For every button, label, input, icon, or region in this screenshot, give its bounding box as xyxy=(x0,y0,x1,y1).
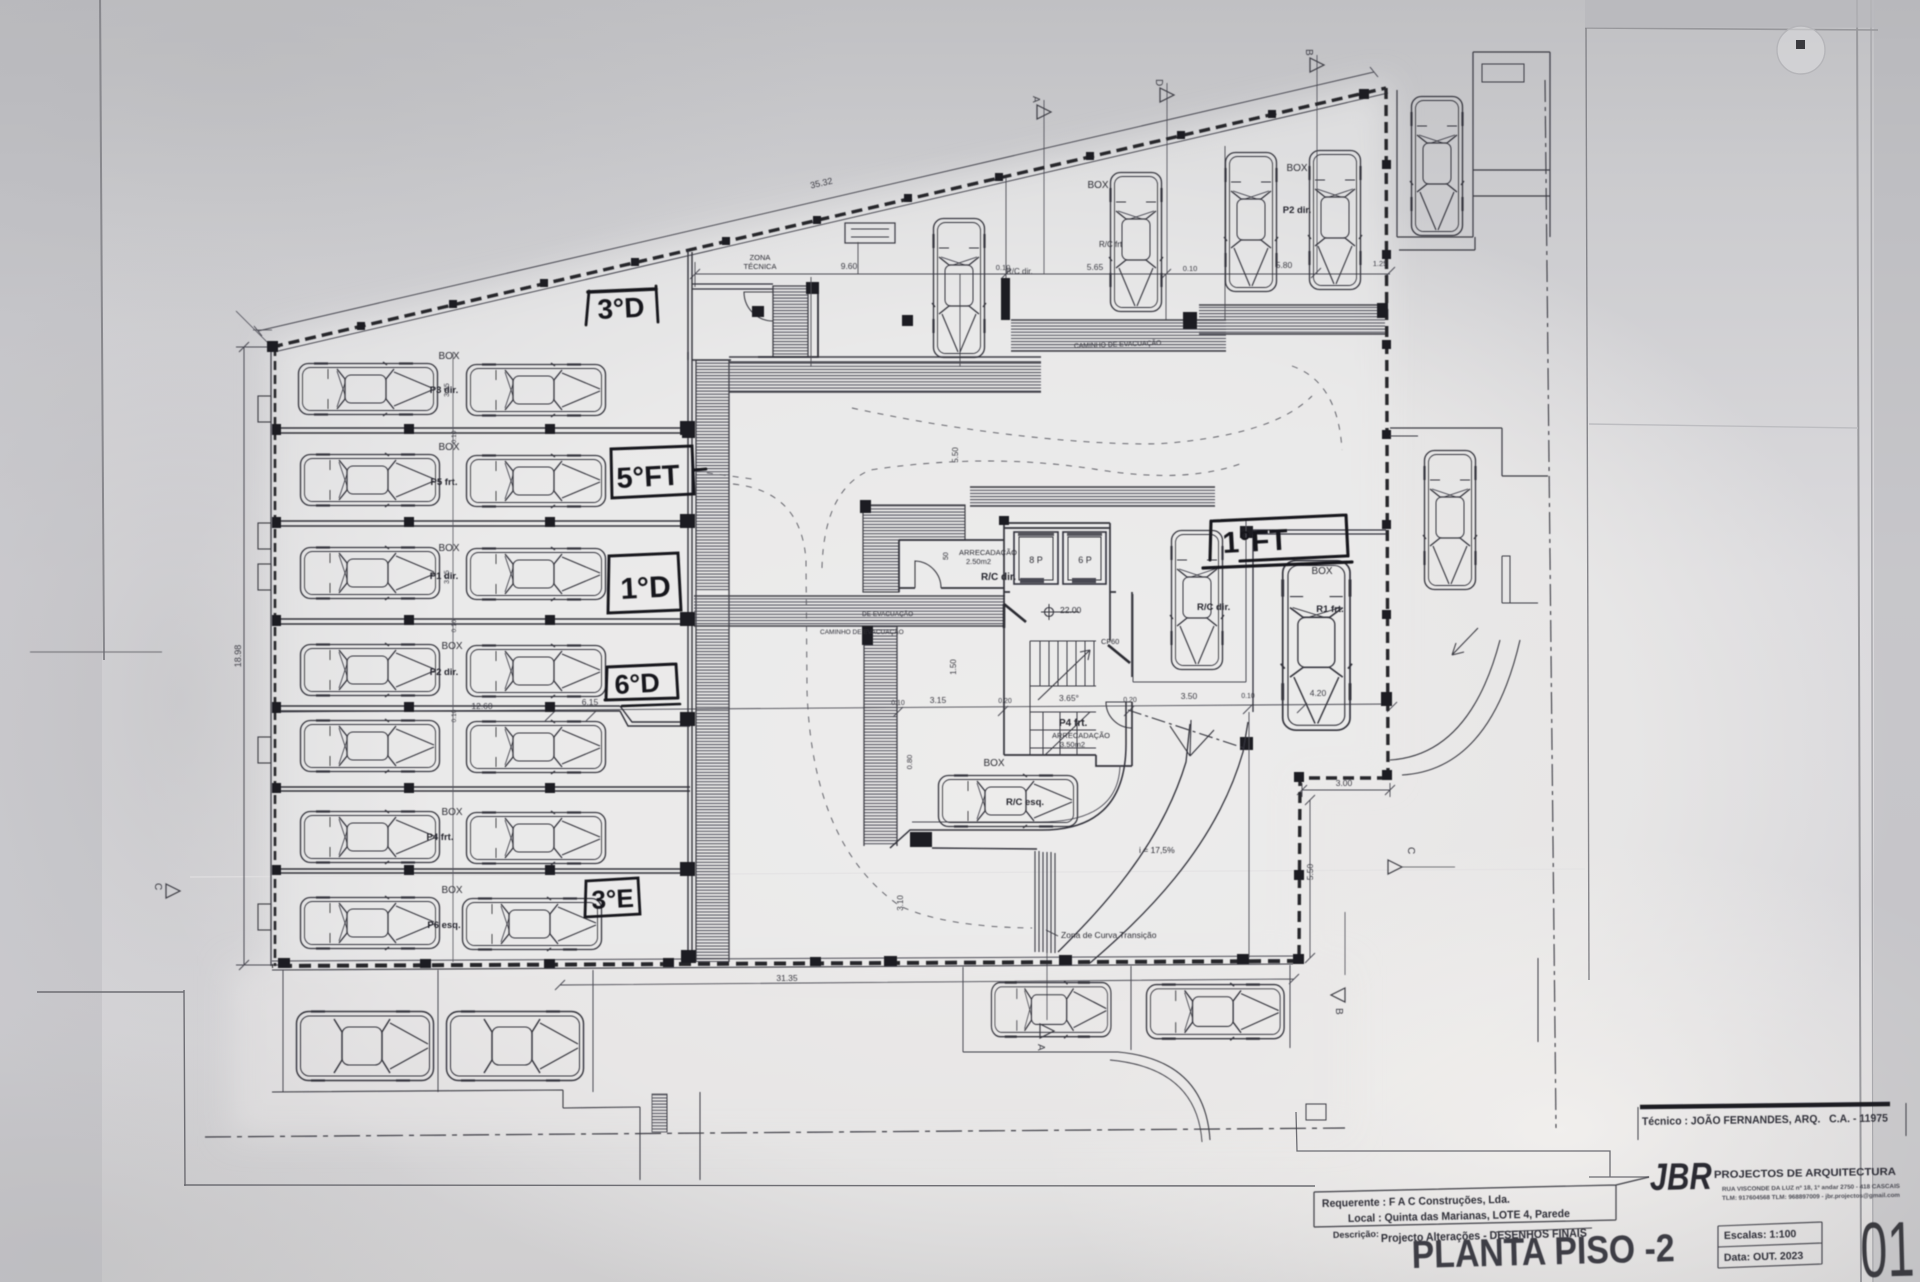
svg-text:R/C dir.: R/C dir. xyxy=(1197,602,1230,613)
svg-text:i = 17,5%: i = 17,5% xyxy=(1139,845,1175,855)
svg-text:3°E: 3°E xyxy=(591,883,635,915)
svg-text:Escalas: 1:100: Escalas: 1:100 xyxy=(1724,1228,1797,1242)
svg-text:6°D: 6°D xyxy=(614,668,661,700)
svg-text:BOX: BOX xyxy=(438,442,459,453)
svg-text:1.50: 1.50 xyxy=(949,659,958,675)
svg-text:BOX: BOX xyxy=(1087,180,1108,191)
svg-text:BOX: BOX xyxy=(441,807,462,818)
svg-text:3.65°: 3.65° xyxy=(1059,693,1079,703)
svg-text:ARRECADAÇÃO: ARRECADAÇÃO xyxy=(1052,731,1110,740)
svg-text:DE EVACUAÇÃO: DE EVACUAÇÃO xyxy=(862,609,913,618)
svg-text:Descrição:: Descrição: xyxy=(1333,1229,1379,1240)
svg-text:B: B xyxy=(1333,1008,1344,1015)
svg-text:P6 esq.: P6 esq. xyxy=(427,920,460,931)
svg-text:5.65: 5.65 xyxy=(1087,262,1104,272)
svg-text:22.00: 22.00 xyxy=(1060,605,1082,615)
svg-text:18.98: 18.98 xyxy=(233,645,243,668)
svg-text:BOX: BOX xyxy=(983,758,1004,769)
svg-text:01: 01 xyxy=(1859,1205,1915,1282)
svg-text:ZONA: ZONA xyxy=(750,253,771,262)
svg-text:P4 frt.: P4 frt. xyxy=(1059,718,1088,729)
svg-text:JBR: JBR xyxy=(1649,1156,1712,1199)
svg-text:A: A xyxy=(1030,96,1041,103)
svg-text:C: C xyxy=(152,883,163,890)
svg-text:P3 dir.: P3 dir. xyxy=(430,385,459,396)
svg-text:BOX: BOX xyxy=(1286,163,1307,174)
svg-text:0.10: 0.10 xyxy=(1183,264,1198,273)
svg-text:P4 frt.: P4 frt. xyxy=(427,832,454,843)
svg-text:P2 dir.: P2 dir. xyxy=(430,667,459,678)
svg-text:31.35: 31.35 xyxy=(776,973,798,983)
svg-text:BOX: BOX xyxy=(438,351,459,362)
svg-text:CF60: CF60 xyxy=(1101,637,1119,646)
svg-text:P1 dir.: P1 dir. xyxy=(430,571,459,582)
svg-text:3.15: 3.15 xyxy=(930,695,947,705)
svg-text:BOX: BOX xyxy=(1311,566,1332,577)
svg-text:TÉCNICA: TÉCNICA xyxy=(744,262,777,271)
svg-text:2.50m2: 2.50m2 xyxy=(966,557,991,566)
svg-text:1°FT: 1°FT xyxy=(1222,524,1289,560)
svg-text:B: B xyxy=(1303,49,1314,56)
svg-text:R/C esq.: R/C esq. xyxy=(1006,797,1044,808)
svg-text:3.50m2: 3.50m2 xyxy=(1060,740,1085,749)
svg-text:P2 dir.: P2 dir. xyxy=(1283,205,1312,216)
svg-text:A: A xyxy=(1035,1044,1046,1051)
svg-text:D: D xyxy=(1153,79,1164,86)
svg-text:3°D: 3°D xyxy=(597,292,646,325)
svg-text:50: 50 xyxy=(943,552,950,560)
svg-text:0.20: 0.20 xyxy=(998,698,1012,705)
svg-text:8 P: 8 P xyxy=(1029,555,1043,565)
svg-text:9.60: 9.60 xyxy=(841,261,858,271)
svg-text:0.10: 0.10 xyxy=(451,619,458,632)
svg-text:5.50: 5.50 xyxy=(1305,863,1315,880)
svg-text:P5 frt.: P5 frt. xyxy=(431,477,458,488)
svg-text:0.80: 0.80 xyxy=(905,755,914,770)
svg-text:Data: OUT. 2023: Data: OUT. 2023 xyxy=(1724,1250,1804,1264)
svg-text:3.50: 3.50 xyxy=(1181,691,1198,701)
svg-text:BOX: BOX xyxy=(441,885,462,896)
svg-text:R1 frt.: R1 frt. xyxy=(1316,604,1343,615)
svg-text:R/C dir.: R/C dir. xyxy=(981,572,1016,583)
svg-text:0.20: 0.20 xyxy=(1123,697,1137,704)
svg-text:C: C xyxy=(1405,847,1416,854)
svg-text:4.20: 4.20 xyxy=(1310,688,1327,698)
svg-text:R/C frt: R/C frt xyxy=(1099,240,1123,249)
svg-text:ARRECADAÇÃO: ARRECADAÇÃO xyxy=(959,548,1017,557)
svg-text:BOX: BOX xyxy=(438,543,459,554)
svg-text:6 P: 6 P xyxy=(1078,555,1092,565)
svg-text:Zona de Curva Transição: Zona de Curva Transição xyxy=(1061,930,1157,940)
svg-text:CAMINHO DE EVACUAÇÃO: CAMINHO DE EVACUAÇÃO xyxy=(820,627,904,636)
svg-text:R/C dir.: R/C dir. xyxy=(1006,267,1033,276)
svg-text:PLANTA PISO -2: PLANTA PISO -2 xyxy=(1411,1227,1675,1277)
svg-text:BOX: BOX xyxy=(441,641,462,652)
svg-text:1°D: 1°D xyxy=(620,570,672,606)
svg-text:5.50: 5.50 xyxy=(951,447,960,463)
svg-text:3.10: 3.10 xyxy=(896,895,905,911)
svg-text:5.80: 5.80 xyxy=(1276,260,1293,270)
svg-text:5°FT: 5°FT xyxy=(616,460,681,495)
